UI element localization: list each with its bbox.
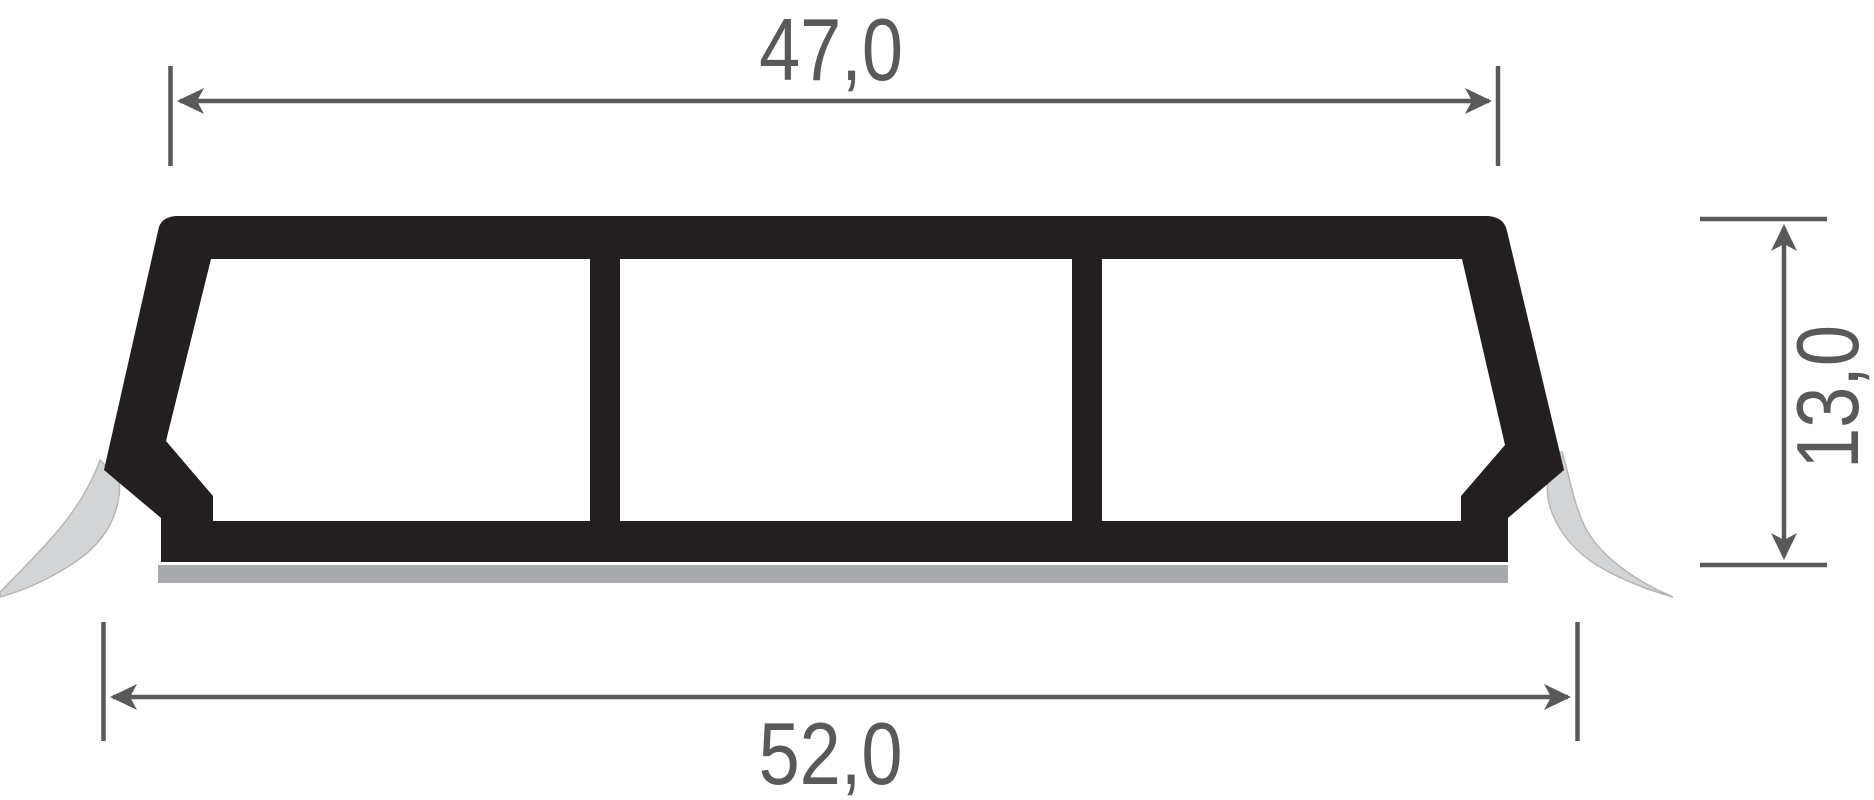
svg-text:13,0: 13,0 <box>1779 325 1874 469</box>
svg-text:47,0: 47,0 <box>759 1 903 100</box>
svg-text:52,0: 52,0 <box>759 705 903 800</box>
